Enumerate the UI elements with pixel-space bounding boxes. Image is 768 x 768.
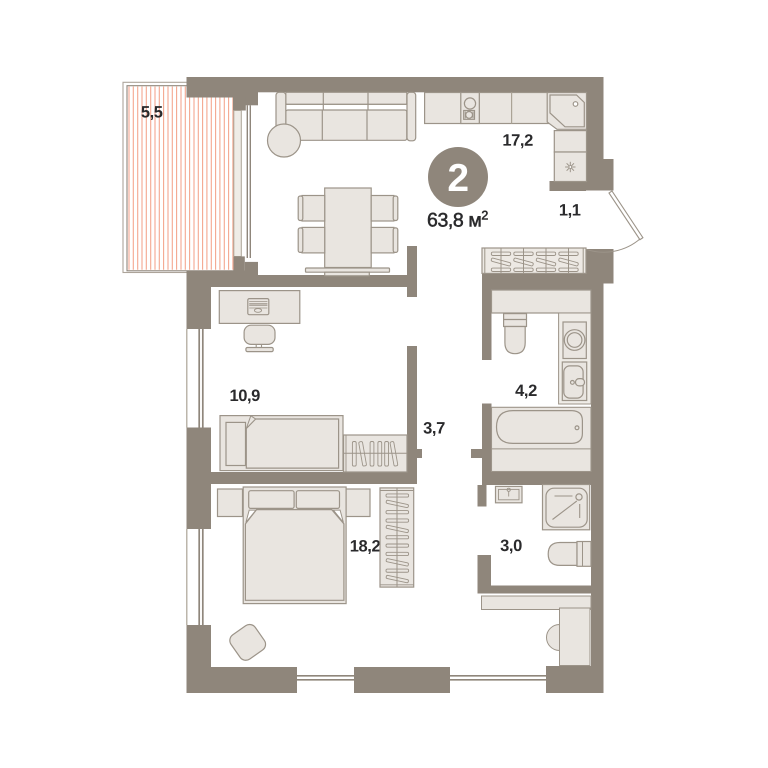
svg-text:18,2: 18,2	[350, 537, 381, 555]
svg-text:3,7: 3,7	[423, 419, 445, 437]
svg-text:63,8 м2: 63,8 м2	[427, 208, 488, 231]
svg-text:4,2: 4,2	[515, 382, 537, 400]
svg-text:10,9: 10,9	[229, 387, 260, 405]
svg-text:5,5: 5,5	[141, 103, 163, 121]
svg-text:17,2: 17,2	[502, 132, 533, 150]
svg-text:3,0: 3,0	[500, 537, 522, 555]
svg-text:2: 2	[447, 157, 468, 200]
svg-text:1,1: 1,1	[559, 201, 581, 219]
